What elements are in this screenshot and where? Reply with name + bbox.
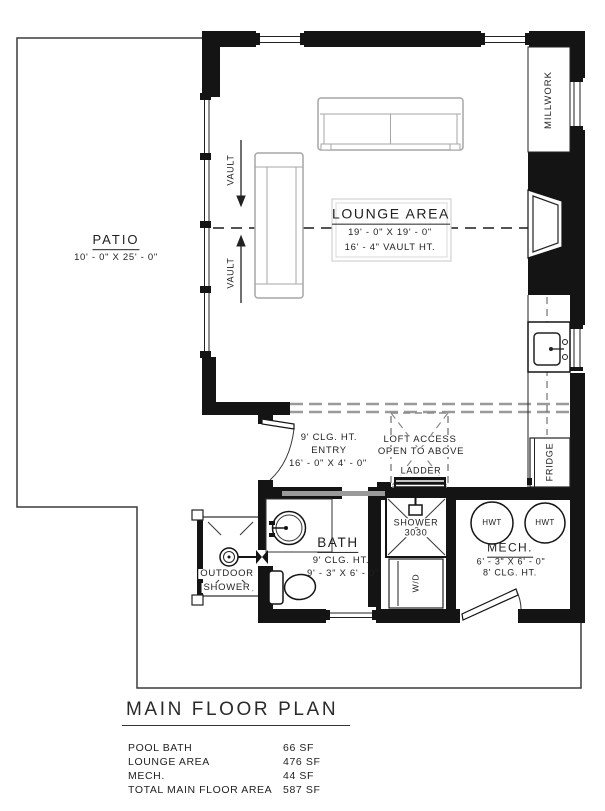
schedule-row-label: MECH. bbox=[128, 770, 165, 782]
entry-clg: 9' CLG. HT. bbox=[301, 433, 358, 443]
wall-west-post-top bbox=[202, 31, 220, 97]
fireplace bbox=[528, 190, 562, 258]
fridge-label: FRIDGE bbox=[545, 443, 554, 482]
floor-plan-drawing bbox=[0, 0, 605, 811]
sofa-vertical bbox=[255, 153, 303, 298]
entry-door bbox=[262, 419, 294, 480]
loft-access-label: LOFT ACCESS bbox=[382, 435, 459, 445]
vault-label-lower: VAULT bbox=[226, 257, 235, 288]
bath-counter bbox=[282, 491, 385, 496]
shower-valve bbox=[256, 550, 262, 564]
window-top-2 bbox=[481, 29, 529, 49]
mech-clg: 8' CLG. HT. bbox=[483, 568, 537, 577]
bath-clg: 9' CLG. HT. bbox=[313, 556, 370, 566]
entry-label: ENTRY bbox=[311, 446, 347, 456]
bath-label: BATH bbox=[317, 536, 358, 550]
hwt-label-2: HWT bbox=[535, 519, 554, 527]
millwork-label: MILLWORK bbox=[544, 71, 554, 129]
hwt-label-1: HWT bbox=[482, 519, 501, 527]
plan-title: MAIN FLOOR PLAN bbox=[122, 699, 350, 726]
lounge-vault-ht: 16' - 4" VAULT HT. bbox=[345, 243, 436, 253]
window-top-1 bbox=[256, 29, 304, 49]
patio-label: PATIO bbox=[92, 233, 139, 247]
vault-arrow-lower bbox=[237, 236, 245, 303]
schedule-row-value: 66 SF bbox=[283, 742, 314, 754]
schedule-row-label: POOL BATH bbox=[128, 742, 192, 754]
window-right-1 bbox=[568, 78, 587, 130]
mech-door bbox=[460, 589, 521, 625]
wall-bottom bbox=[258, 609, 585, 623]
floor-plan-page: PATIO 10' - 0" X 25' - 0" VAULT VAULT LO… bbox=[0, 0, 605, 811]
lounge-label: LOUNGE AREA bbox=[332, 207, 450, 222]
lounge-dims: 19' - 0" X 19' - 0" bbox=[348, 228, 432, 238]
wall-shower-west bbox=[368, 487, 381, 623]
vault-arrow-upper bbox=[237, 140, 245, 206]
ladder-label: LADDER bbox=[399, 466, 444, 475]
window-right-2 bbox=[568, 325, 587, 373]
shower-size-label: 3030 bbox=[403, 528, 430, 537]
patio-dims: 10' - 0" X 25' - 0" bbox=[74, 253, 158, 263]
wall-lounge-south bbox=[202, 402, 290, 415]
wall-ladder-nub bbox=[377, 482, 391, 491]
vault-label-upper: VAULT bbox=[226, 154, 235, 185]
ladder bbox=[394, 477, 446, 490]
entry-dims: 16' - 0" X 4' - 0" bbox=[289, 459, 367, 469]
mech-label: MECH. bbox=[487, 542, 533, 555]
washer-dryer-label: W/D bbox=[412, 574, 421, 593]
bath-dims: 9' - 3" X 6' - 0" bbox=[307, 569, 379, 579]
window-bottom-bath bbox=[326, 607, 376, 625]
shower-post-bottom bbox=[192, 595, 203, 605]
mech-dims: 6' - 3" X 6' - 0" bbox=[477, 557, 546, 566]
open-to-above-label: OPEN TO ABOVE bbox=[376, 447, 466, 457]
outdoor-shower-label-2: SHOWER bbox=[202, 583, 253, 593]
schedule-row-value: 587 SF bbox=[283, 784, 320, 796]
outdoor-shower-label-1: OUTDOOR bbox=[198, 569, 255, 579]
sofa-horizontal bbox=[318, 98, 463, 150]
schedule-row-label: TOTAL MAIN FLOOR AREA bbox=[128, 784, 272, 796]
shower-post-top bbox=[192, 510, 203, 520]
schedule-row-value: 44 SF bbox=[283, 770, 314, 782]
shower-head bbox=[409, 505, 422, 515]
schedule-row-value: 476 SF bbox=[283, 756, 320, 768]
toilet-tank bbox=[269, 571, 283, 604]
west-glazing-wall bbox=[200, 93, 211, 358]
schedule-row-label: LOUNGE AREA bbox=[128, 756, 210, 768]
